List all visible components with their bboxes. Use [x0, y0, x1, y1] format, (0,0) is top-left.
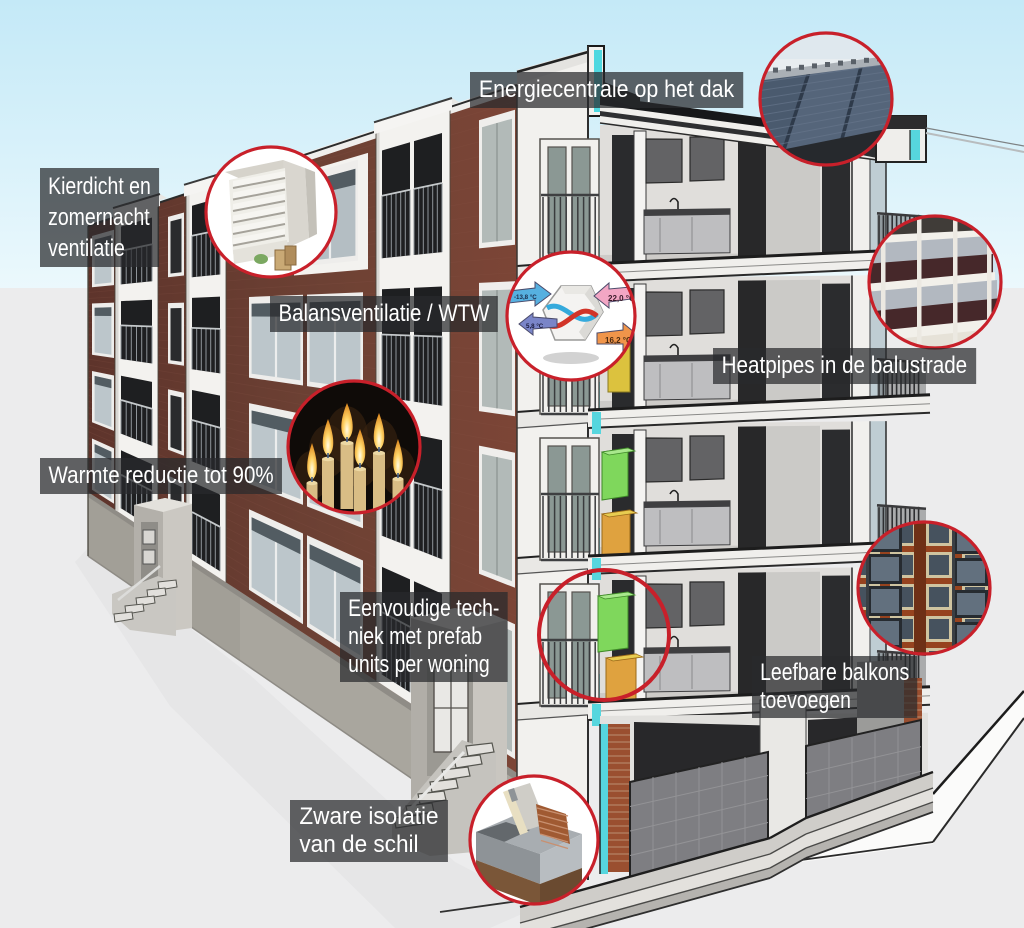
- svg-text:-13,8 °C: -13,8 °C: [514, 294, 537, 301]
- svg-text:5,8 °C: 5,8 °C: [526, 323, 544, 330]
